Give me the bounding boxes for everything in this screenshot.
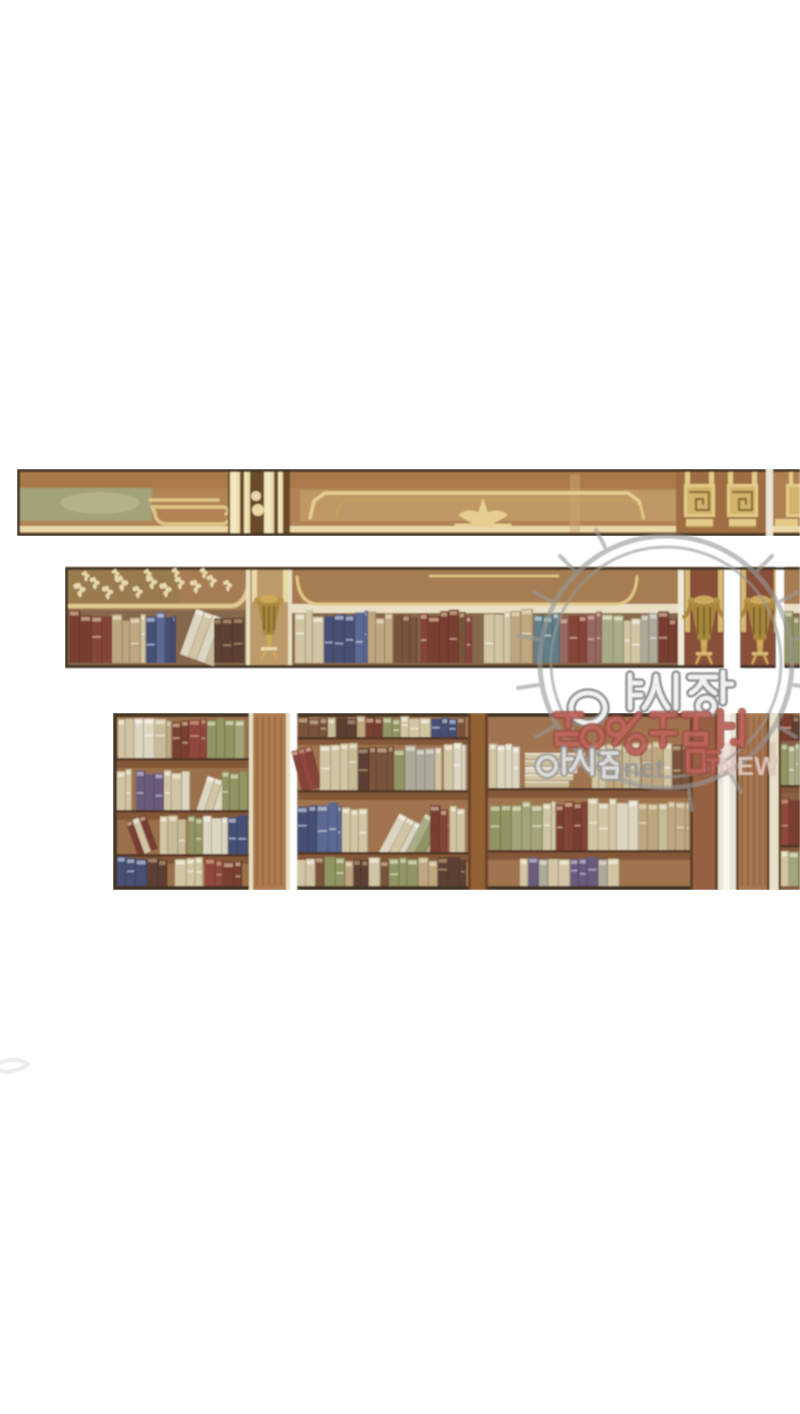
svg-text:.net: .net <box>616 753 664 783</box>
svg-text:NEW: NEW <box>718 751 779 781</box>
